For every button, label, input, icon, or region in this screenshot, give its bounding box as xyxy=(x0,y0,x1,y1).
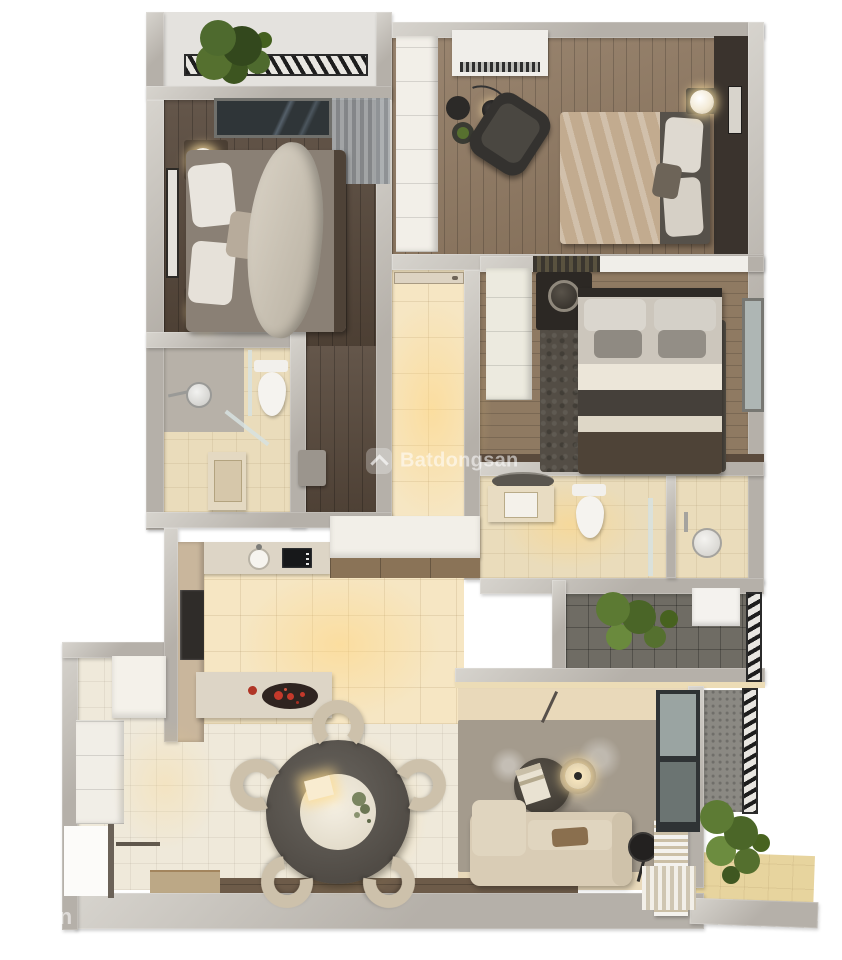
balcony-right-railing xyxy=(742,688,758,814)
bedroom1-closet-dresser xyxy=(298,450,326,486)
watermark-corner: ongsan xyxy=(0,904,72,930)
bathroom2-vanity xyxy=(488,486,554,522)
bedroom2-table-plant xyxy=(457,127,469,139)
balcony-top-plant xyxy=(200,20,236,56)
batdongsan-logo-icon xyxy=(366,448,392,474)
wall-balcony-mid-left xyxy=(552,580,566,672)
kitchen-sink xyxy=(248,548,270,570)
kitchen-under-shelf xyxy=(330,558,480,578)
hallway-floor xyxy=(392,270,464,518)
bedroom3-blanket-dark xyxy=(578,390,722,416)
bathroom2-shower-head xyxy=(692,528,722,558)
kitchen-small-red-dish xyxy=(248,686,257,695)
wall-left-outer-upper xyxy=(146,100,164,530)
bedroom3-pillow-4 xyxy=(658,330,706,358)
window-pane-lower xyxy=(660,762,696,822)
entrance-door-frame xyxy=(108,824,114,898)
bedroom2-wall-art xyxy=(728,86,742,134)
bedroom2-blanket xyxy=(560,112,660,244)
bedroom3-headboard xyxy=(578,288,722,297)
balcony-mid-railing xyxy=(746,592,762,682)
balcony-right-slats xyxy=(642,866,696,910)
bathroom1-sink xyxy=(214,460,242,502)
bedroom3-pillow-2 xyxy=(654,299,716,331)
kitchen-cooktop xyxy=(282,548,312,568)
bedroom3-pillow-1 xyxy=(584,299,646,331)
wall-bathroom1-right xyxy=(290,332,306,528)
dining-chair-1 xyxy=(312,700,364,752)
watermark-center: Batdongsan xyxy=(366,448,519,474)
floor-plan-canvas: Batdongsan ongsan xyxy=(0,0,842,960)
kitchen-fridge xyxy=(180,590,204,660)
bathroom2-shower-arm xyxy=(684,512,688,532)
balcony-right-plant xyxy=(700,800,734,834)
living-coffee-table-lamp xyxy=(560,758,596,794)
entrance-coat-rail xyxy=(116,842,160,846)
balcony-right-wall-texture xyxy=(704,690,744,812)
hallway-door-handle xyxy=(452,276,458,280)
bathroom1-vanity xyxy=(208,452,246,510)
sofa-chaise xyxy=(472,800,526,856)
sofa-lumbar-cushion xyxy=(551,827,588,847)
watermark-corner-text: ongsan xyxy=(0,904,72,929)
bedroom1-wall-mirror-panel xyxy=(166,168,179,278)
watermark-corner-smudge-bottom xyxy=(14,930,44,935)
bedroom1-closet-floor xyxy=(306,346,378,526)
entrance-upper-cabinet xyxy=(112,656,166,718)
bedroom1-window-glass xyxy=(214,98,332,138)
bedroom1-bed xyxy=(186,150,346,332)
bedroom3-top-white-panel xyxy=(600,256,748,272)
watermark-center-text: Batdongsan xyxy=(400,449,519,471)
entrance-lower-cabinet xyxy=(76,720,124,824)
wall-bedroom2-top xyxy=(392,22,764,38)
wall-bottom-right-outer xyxy=(690,898,819,928)
balcony-mid-plant xyxy=(596,592,630,626)
bedroom2-headboard-wall xyxy=(714,36,748,254)
table-lamp-top xyxy=(574,772,582,780)
bedroom3-round-mirror xyxy=(548,280,580,312)
window-pane-upper xyxy=(660,694,696,756)
kitchen-upper-cabinets xyxy=(330,516,480,558)
kitchen-faucet xyxy=(256,544,262,550)
bedroom3-pillow-3 xyxy=(594,330,642,358)
bedroom3-blanket-fold xyxy=(578,416,722,432)
balcony-top-floor xyxy=(162,12,378,88)
bedroom3-sheet-band xyxy=(578,364,722,390)
bathroom2-glass-door xyxy=(648,498,653,576)
bedroom2-wardrobe xyxy=(396,36,438,252)
bedroom3-window xyxy=(742,298,764,412)
dining-chair-shell xyxy=(312,700,364,752)
bedroom3-blanket-foot xyxy=(578,432,722,474)
bathroom1-shower-head xyxy=(186,382,212,408)
bedroom3-closet-slats xyxy=(533,256,601,272)
balcony-top-railing xyxy=(184,54,368,76)
entrance-door-opening xyxy=(64,826,110,896)
watermark-corner-smudge-top xyxy=(22,896,58,902)
bedroom3-wardrobe xyxy=(486,268,532,400)
bathroom1-glass-screen xyxy=(248,350,252,416)
bedroom2-ac-grille xyxy=(460,62,540,72)
wall-kitchen-left xyxy=(164,528,178,742)
tray-red-food xyxy=(274,691,283,700)
bathroom2-toilet-tank xyxy=(572,484,606,496)
bedroom1-duvet-drape xyxy=(236,138,333,342)
kitchen-serving-tray xyxy=(262,683,318,709)
balcony-mid-white-cabinet xyxy=(692,588,740,626)
bedroom1-bed-footboard xyxy=(334,150,346,332)
balcony-right-window-frames xyxy=(656,690,700,832)
bathroom2-sink xyxy=(504,492,538,518)
bathroom1-toilet-tank xyxy=(254,360,288,372)
cooktop-knobs xyxy=(306,551,309,565)
bedroom2-lamp xyxy=(690,90,714,114)
bedroom3-bed xyxy=(578,288,722,474)
dining-flowers xyxy=(352,792,366,806)
wall-bathroom2-shower-divider xyxy=(666,476,676,578)
wall-living-top-lit-face xyxy=(455,682,765,688)
bedroom2-bed xyxy=(560,112,710,244)
